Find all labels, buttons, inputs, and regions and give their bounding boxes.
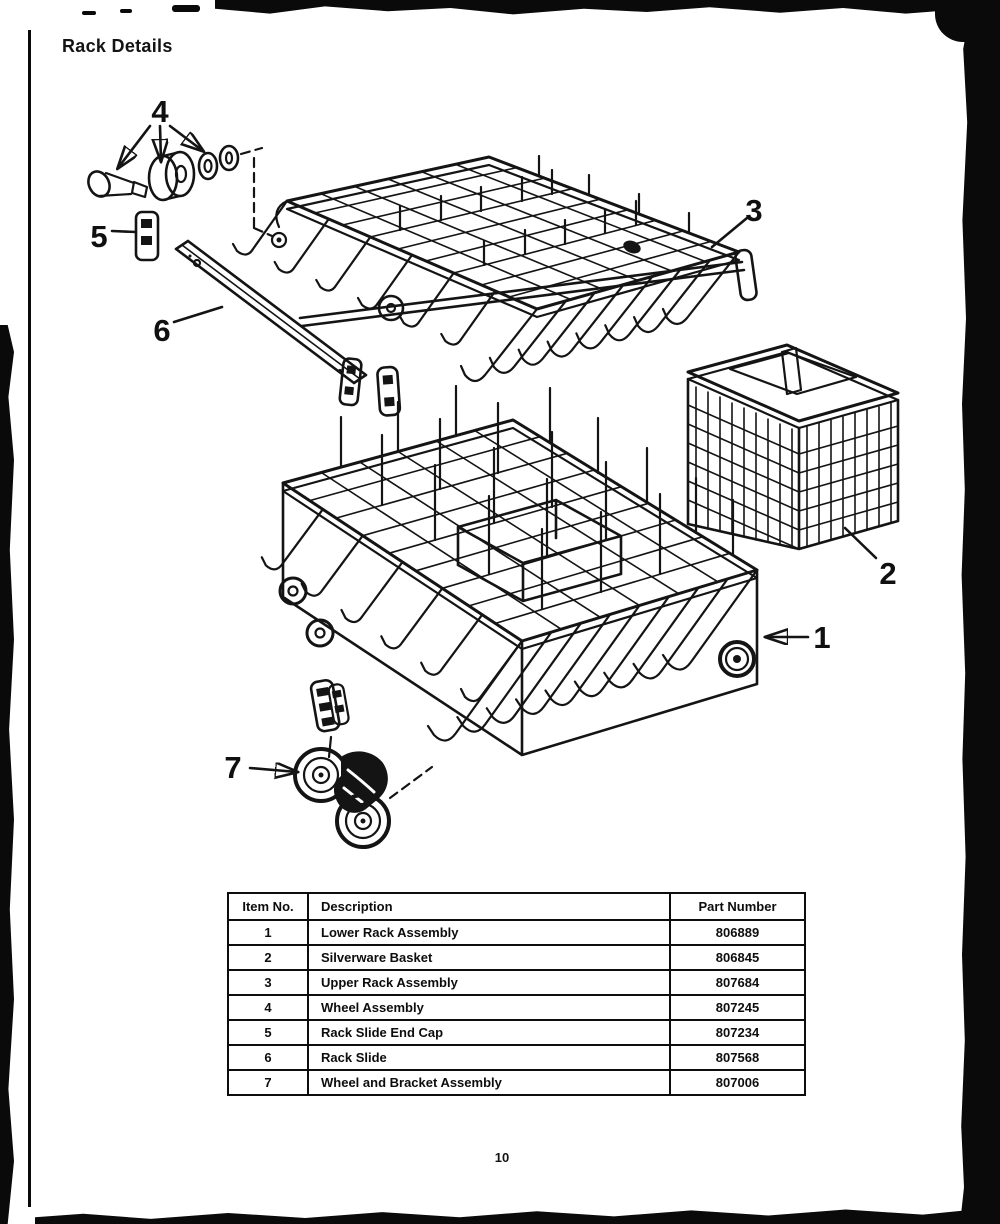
callout-6: 6 bbox=[153, 313, 170, 348]
parts-table: Item No. Description Part Number 1 Lower… bbox=[227, 892, 806, 1096]
scan-artifact-right bbox=[960, 0, 1000, 1224]
wheel-assembly-drawing bbox=[84, 146, 272, 236]
scan-artifact-speck bbox=[172, 5, 200, 12]
item-no: 5 bbox=[228, 1020, 308, 1045]
callout-4-arrow-b bbox=[160, 126, 161, 161]
callout-7: 7 bbox=[224, 750, 241, 785]
item-no: 6 bbox=[228, 1045, 308, 1070]
table-row: 4 Wheel Assembly 807245 bbox=[228, 995, 805, 1020]
exploded-parts-diagram: 1 2 3 4 5 6 7 bbox=[0, 0, 1000, 880]
table-row: 2 Silverware Basket 806845 bbox=[228, 945, 805, 970]
part-number: 807234 bbox=[670, 1020, 805, 1045]
callout-4: 4 bbox=[151, 94, 169, 129]
part-number: 806889 bbox=[670, 920, 805, 945]
rack-slide-end-cap-drawing-3 bbox=[377, 367, 400, 416]
table-row: 7 Wheel and Bracket Assembly 807006 bbox=[228, 1070, 805, 1095]
table-row: 3 Upper Rack Assembly 807684 bbox=[228, 970, 805, 995]
part-number: 807684 bbox=[670, 970, 805, 995]
callout-2: 2 bbox=[879, 556, 896, 591]
callout-4-arrow-c bbox=[170, 126, 203, 151]
scan-artifact-bottom bbox=[35, 1207, 1000, 1224]
item-no: 3 bbox=[228, 970, 308, 995]
description: Wheel Assembly bbox=[308, 995, 670, 1020]
manual-page: Rack Details bbox=[0, 0, 1000, 1224]
header-description: Description bbox=[308, 893, 670, 920]
header-part-number: Part Number bbox=[670, 893, 805, 920]
upper-rack-assembly-drawing bbox=[233, 156, 757, 381]
callout-3: 3 bbox=[745, 193, 762, 228]
description: Silverware Basket bbox=[308, 945, 670, 970]
callout-3-leader bbox=[712, 218, 747, 247]
page-title: Rack Details bbox=[62, 36, 173, 57]
silverware-basket-drawing bbox=[688, 345, 898, 549]
scan-artifact-speck bbox=[82, 11, 96, 15]
description: Upper Rack Assembly bbox=[308, 970, 670, 995]
table-row: 5 Rack Slide End Cap 807234 bbox=[228, 1020, 805, 1045]
description: Lower Rack Assembly bbox=[308, 920, 670, 945]
rack-slide-end-cap-drawing bbox=[136, 212, 158, 260]
callout-1: 1 bbox=[813, 620, 830, 655]
table-row: 1 Lower Rack Assembly 806889 bbox=[228, 920, 805, 945]
header-item-no: Item No. bbox=[228, 893, 308, 920]
item-no: 2 bbox=[228, 945, 308, 970]
scan-artifact-left-rule bbox=[28, 30, 31, 1207]
callout-6-leader bbox=[174, 307, 222, 322]
part-number: 807006 bbox=[670, 1070, 805, 1095]
description: Wheel and Bracket Assembly bbox=[308, 1070, 670, 1095]
table-row: 6 Rack Slide 807568 bbox=[228, 1045, 805, 1070]
page-number: 10 bbox=[487, 1150, 517, 1165]
part-number: 807568 bbox=[670, 1045, 805, 1070]
item-no: 1 bbox=[228, 920, 308, 945]
table-header-row: Item No. Description Part Number bbox=[228, 893, 805, 920]
part-number: 806845 bbox=[670, 945, 805, 970]
part-number: 807245 bbox=[670, 995, 805, 1020]
callout-5: 5 bbox=[90, 219, 107, 254]
callout-4-arrow-a bbox=[118, 126, 150, 168]
callout-7-arrow bbox=[250, 768, 297, 772]
item-no: 4 bbox=[228, 995, 308, 1020]
wheel-bracket-assembly-drawing bbox=[295, 677, 432, 847]
item-no: 7 bbox=[228, 1070, 308, 1095]
description: Rack Slide End Cap bbox=[308, 1020, 670, 1045]
description: Rack Slide bbox=[308, 1045, 670, 1070]
callout-5-leader bbox=[112, 231, 136, 232]
scan-artifact-speck bbox=[120, 9, 132, 13]
